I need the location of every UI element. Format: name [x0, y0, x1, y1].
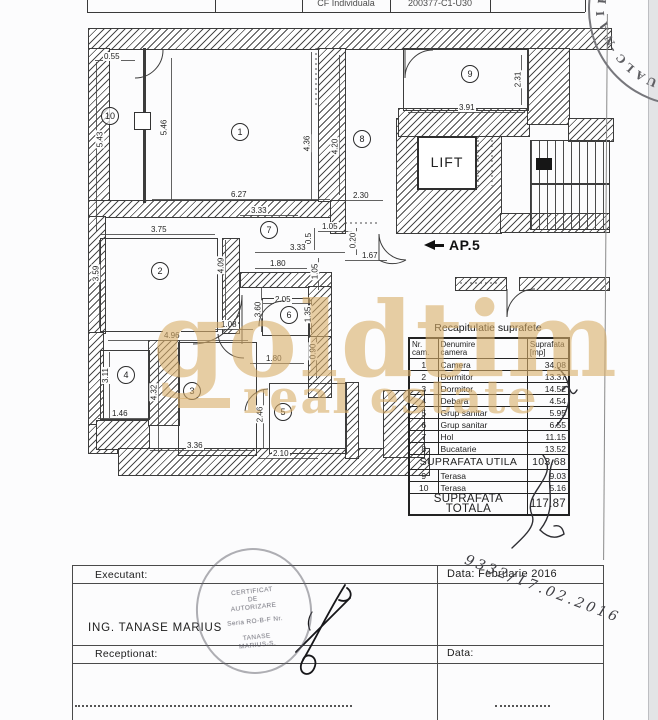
receptionat-label: Receptionat:	[95, 648, 158, 660]
dimension-label: 3.75	[150, 225, 168, 234]
dimension-label: 3.59	[91, 265, 100, 283]
wall-hatched	[345, 382, 359, 459]
footer-border	[72, 663, 603, 664]
area-row: 1Camera34.08	[410, 359, 569, 371]
dimension-line	[258, 458, 318, 459]
col-header-suprafata: Suprafata[mp]	[527, 339, 568, 359]
dimension-label: 4.96	[163, 331, 181, 340]
dimension-line	[311, 52, 312, 200]
dimension-label: 0.90	[308, 343, 317, 361]
scan-edge	[648, 0, 658, 720]
dimension-line	[314, 228, 315, 250]
dimension-label: 2.10	[272, 449, 290, 458]
footer-border	[72, 565, 603, 566]
header-divider	[87, 0, 88, 12]
stairs-lower-flight	[530, 184, 610, 230]
dimension-label: 0.20	[348, 232, 357, 250]
signature-dotted-line	[75, 705, 352, 707]
dimension-label: 3.60	[253, 301, 262, 319]
header-divider	[490, 0, 491, 12]
room-number-5: 5	[274, 403, 292, 421]
dimension-label: 4.32	[149, 384, 158, 402]
dimension-label: 5.46	[159, 119, 168, 137]
dimension-label: 3.33	[289, 243, 307, 252]
corner-stamp-letter: R	[596, 0, 610, 4]
wall-hatched	[519, 277, 610, 291]
watermark-dash	[178, 398, 230, 408]
apartment-5-label: AP.5	[449, 237, 480, 253]
dimension-label: 1.08	[220, 320, 238, 329]
area-table-title: Recapitulatie suprafete	[408, 322, 568, 334]
header-bottom-border	[87, 12, 585, 13]
dimension-label: 1.05	[310, 263, 319, 281]
area-row: 3Dormitor14.52	[410, 383, 569, 395]
area-row: 5Grup sanitar5.95	[410, 407, 569, 419]
area-row: 2Dormitor13.37	[410, 371, 569, 383]
dimension-label: 1.80	[269, 259, 287, 268]
header-divider	[215, 0, 216, 12]
dimension-label: 1.35	[303, 306, 312, 324]
data-receptionat: Data:	[447, 647, 474, 659]
area-row: 9Terasa9.03	[410, 470, 569, 482]
room-number-2: 2	[151, 262, 169, 280]
dimension-label: 3.33	[250, 206, 268, 215]
dimension-line	[108, 340, 248, 341]
dimension-label: 2.30	[352, 191, 370, 200]
corner-stamp-letter: I	[594, 10, 607, 16]
suprafata-totala-row: SUPRAFATA TOTALA117.87	[410, 494, 569, 515]
dimension-line	[240, 215, 298, 216]
wall-hatched	[318, 48, 346, 202]
dimension-line	[345, 200, 383, 201]
room-outline	[100, 238, 218, 332]
dimension-label: 2.31	[513, 71, 522, 89]
wall-hatched	[88, 28, 612, 50]
dimension-line	[255, 252, 345, 253]
wall-hatched	[527, 48, 570, 125]
footer-border	[72, 565, 73, 720]
dimension-label: 4.36	[302, 135, 311, 153]
room-number-4: 4	[117, 366, 135, 384]
dimension-line	[100, 234, 215, 235]
area-row: 4Debara4.54	[410, 395, 569, 407]
dimension-label: 1.46	[111, 409, 129, 418]
dimension-label: 1.80	[265, 354, 283, 363]
dimension-label: 3.36	[186, 441, 204, 450]
apartment-5-callout: AP.5	[424, 236, 480, 254]
dimension-line	[225, 240, 226, 330]
footer-border	[603, 565, 604, 720]
dimension-label: 1.67	[361, 251, 379, 260]
room-number-7: 7	[260, 221, 278, 239]
area-table: Nr.cam.DenumirecameraSuprafata[mp]1Camer…	[408, 337, 570, 516]
scanned-floorplan-page: CF Individuala 200377-C1-U30 RIAN-CLAU 0…	[0, 0, 658, 720]
left-arrow-tail	[435, 244, 444, 247]
dimension-label: 2.46	[255, 406, 264, 424]
footer-divider	[437, 565, 438, 720]
header-divider	[585, 0, 586, 12]
col-header-nr: Nr.cam.	[410, 339, 439, 359]
dimension-label: 0.55	[103, 52, 121, 61]
footer-border	[72, 645, 603, 646]
dimension-line	[318, 231, 352, 232]
room-number-9: 9	[461, 65, 479, 83]
dimension-line	[250, 363, 304, 364]
corridor-door-arc	[507, 289, 535, 317]
handwritten-registration-number: 9332/17.02.2016	[462, 552, 622, 626]
area-row: 10Terasa5.16	[410, 482, 569, 494]
executant-label: Executant:	[95, 569, 148, 581]
room-number-8: 8	[353, 130, 371, 148]
dimension-label: 1.05	[321, 222, 339, 231]
lift-shaft: LIFT	[417, 136, 477, 190]
certification-stamp: CERTIFICATDEAUTORIZARESeria RO-B-F Nr.TA…	[190, 542, 319, 679]
dimension-line	[215, 329, 253, 330]
dimension-line	[408, 112, 525, 113]
dimension-label: 3.11	[101, 367, 110, 384]
col-header-denumire: Denumirecamera	[438, 339, 527, 359]
door-arc	[135, 50, 163, 78]
dimension-label: 2.05	[274, 295, 292, 304]
dimension-line	[99, 240, 100, 328]
wall-hatched	[455, 277, 507, 291]
dimension-line	[109, 352, 110, 418]
dimension-label: 4.20	[330, 138, 339, 156]
dimension-line	[150, 450, 255, 451]
dimension-line	[255, 268, 307, 269]
header-cell-cf: CF Individuala	[303, 0, 389, 6]
dimension-line	[339, 55, 340, 195]
dimension-line	[345, 260, 387, 261]
stairs-landing-mark	[536, 158, 552, 170]
header-cell-number: 200377-C1-U30	[391, 0, 489, 6]
area-row: 8Bucatarie13.52	[410, 443, 569, 455]
dimension-line	[152, 199, 330, 200]
room-number-1: 1	[231, 123, 249, 141]
wall-hatched	[96, 420, 150, 450]
signature-dotted-line	[495, 705, 550, 707]
suprafata-utila-row: SUPRAFATA UTILA103.68	[410, 455, 569, 470]
terrace-column	[134, 112, 151, 130]
area-row: 7Hol11.15	[410, 431, 569, 443]
dimension-label: 3.91	[458, 103, 476, 112]
room-number-6: 6	[280, 306, 298, 324]
dimension-line	[98, 418, 148, 419]
dimension-label: 5.43	[95, 131, 104, 149]
dimension-label: 6.27	[230, 190, 248, 199]
area-row: 6Grup sanitar6.55	[410, 419, 569, 431]
wall-hatched	[88, 200, 337, 218]
left-arrow-icon	[424, 240, 435, 250]
dimension-label: 4.09	[216, 257, 225, 275]
room-number-10: 10	[101, 107, 119, 125]
dimension-line	[171, 58, 172, 200]
